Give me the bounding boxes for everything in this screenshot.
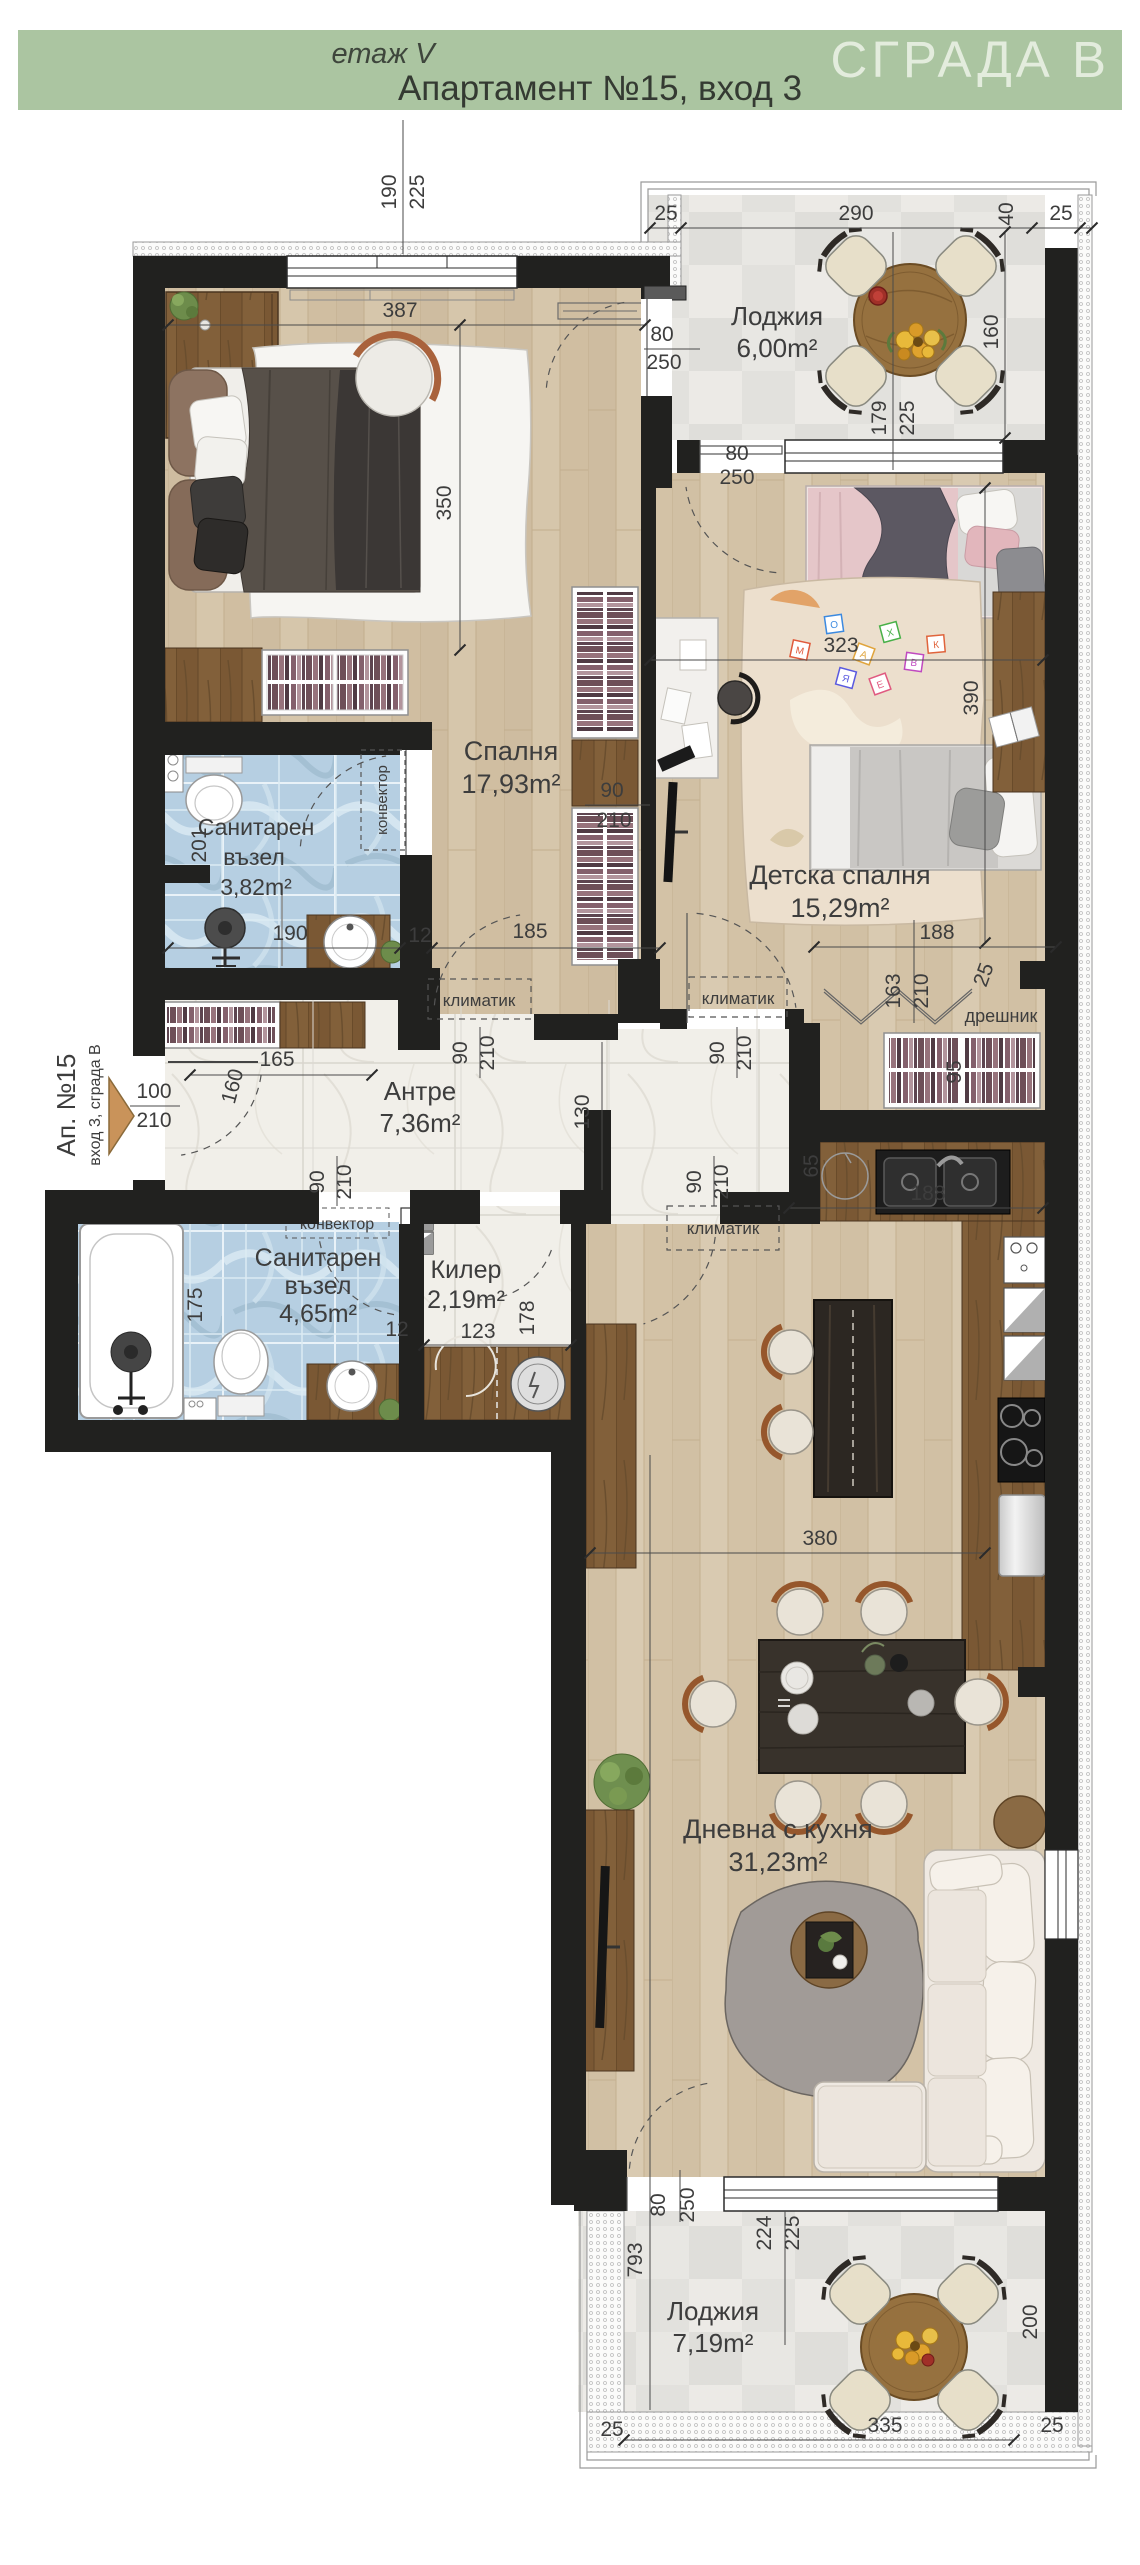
svg-text:климатик: климатик	[687, 1219, 760, 1238]
svg-text:Апартамент №15, вход 3: Апартамент №15, вход 3	[398, 69, 802, 108]
svg-text:225: 225	[406, 174, 429, 209]
svg-text:225: 225	[781, 2215, 804, 2250]
svg-text:4,65m²: 4,65m²	[279, 1300, 357, 1328]
svg-text:25: 25	[654, 202, 677, 225]
svg-text:210: 210	[476, 1035, 499, 1070]
svg-text:80: 80	[647, 2193, 670, 2216]
svg-text:95: 95	[943, 1060, 966, 1083]
svg-text:190: 190	[378, 174, 401, 209]
svg-text:210: 210	[710, 1164, 733, 1199]
svg-text:40: 40	[995, 202, 1018, 225]
svg-text:190: 190	[272, 922, 307, 945]
svg-text:Спалня: Спалня	[464, 736, 558, 766]
svg-text:Килер: Килер	[431, 1256, 502, 1284]
svg-text:25: 25	[1049, 202, 1072, 225]
svg-text:80: 80	[650, 323, 673, 346]
svg-text:90: 90	[706, 1041, 729, 1064]
svg-text:250: 250	[676, 2187, 699, 2222]
svg-text:дрешник: дрешник	[965, 1006, 1038, 1026]
svg-text:290: 290	[838, 202, 873, 225]
svg-text:380: 380	[802, 1527, 837, 1550]
svg-text:185: 185	[512, 920, 547, 943]
svg-text:климатик: климатик	[702, 989, 775, 1008]
svg-text:200: 200	[1019, 2304, 1042, 2339]
svg-text:160: 160	[980, 314, 1003, 349]
svg-text:Антре: Антре	[384, 1076, 457, 1106]
svg-text:90: 90	[306, 1170, 329, 1193]
svg-text:224: 224	[753, 2215, 776, 2250]
svg-text:335: 335	[867, 2414, 902, 2437]
svg-text:Лоджия: Лоджия	[731, 301, 823, 331]
svg-text:Лоджия: Лоджия	[667, 2296, 759, 2326]
svg-text:250: 250	[646, 351, 681, 374]
svg-text:163: 163	[882, 973, 905, 1008]
svg-text:323: 323	[823, 634, 858, 657]
svg-text:възел: възел	[285, 1272, 352, 1300]
svg-text:175: 175	[184, 1287, 207, 1322]
svg-text:90: 90	[449, 1041, 472, 1064]
svg-text:90: 90	[600, 779, 623, 802]
svg-text:188: 188	[919, 921, 954, 944]
svg-text:210: 210	[136, 1109, 171, 1132]
svg-text:2,19m²: 2,19m²	[427, 1286, 505, 1314]
svg-text:Санитарен: Санитарен	[255, 1244, 382, 1272]
svg-text:210: 210	[333, 1164, 356, 1199]
svg-text:17,93m²: 17,93m²	[461, 769, 560, 799]
svg-text:Санитарен: Санитарен	[198, 814, 315, 840]
svg-text:201: 201	[188, 827, 211, 862]
svg-text:вход 3, сграда В: вход 3, сграда В	[87, 1044, 104, 1165]
svg-text:250: 250	[719, 466, 754, 489]
svg-text:90: 90	[683, 1170, 706, 1193]
svg-text:65: 65	[800, 1154, 823, 1177]
svg-text:12: 12	[385, 1318, 408, 1341]
svg-text:7,36m²: 7,36m²	[380, 1108, 461, 1138]
svg-text:130: 130	[571, 1094, 594, 1129]
svg-text:К: К	[933, 640, 940, 651]
svg-text:Дневна с кухня: Дневна с кухня	[683, 1814, 873, 1844]
svg-text:Ап. №15: Ап. №15	[51, 1054, 81, 1157]
svg-text:350: 350	[433, 485, 456, 520]
svg-text:климатик: климатик	[443, 991, 516, 1010]
svg-text:31,23m²: 31,23m²	[728, 1847, 827, 1877]
svg-text:80: 80	[725, 442, 748, 465]
svg-text:179: 179	[868, 400, 891, 435]
svg-text:100: 100	[136, 1080, 171, 1103]
svg-text:7,19m²: 7,19m²	[673, 2328, 754, 2358]
svg-text:210: 210	[910, 973, 933, 1008]
svg-text:178: 178	[516, 1300, 539, 1335]
svg-text:Детска спалня: Детска спалня	[749, 860, 930, 890]
svg-text:123: 123	[460, 1320, 495, 1343]
svg-text:225: 225	[896, 400, 919, 435]
svg-text:6,00m²: 6,00m²	[737, 333, 818, 363]
svg-text:възел: възел	[223, 844, 285, 870]
svg-text:12: 12	[408, 924, 431, 947]
svg-text:210: 210	[733, 1035, 756, 1070]
svg-text:390: 390	[960, 680, 983, 715]
svg-text:СГРАДА В: СГРАДА В	[830, 31, 1110, 88]
svg-text:387: 387	[382, 299, 417, 322]
svg-text:конвектор: конвектор	[374, 765, 391, 835]
svg-text:188: 188	[910, 1182, 945, 1205]
svg-text:етаж V: етаж V	[331, 38, 437, 70]
svg-text:3,82m²: 3,82m²	[220, 874, 292, 900]
svg-text:25: 25	[600, 2418, 623, 2441]
svg-text:25: 25	[1040, 2414, 1063, 2437]
svg-text:165: 165	[259, 1048, 294, 1071]
svg-text:210: 210	[596, 809, 631, 832]
svg-text:793: 793	[624, 2242, 647, 2277]
svg-text:15,29m²: 15,29m²	[790, 893, 889, 923]
